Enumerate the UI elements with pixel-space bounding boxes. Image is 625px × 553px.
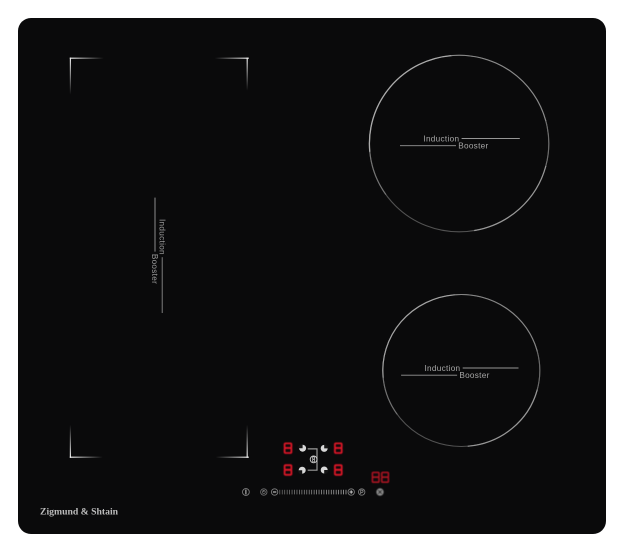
svg-text:Booster: Booster	[458, 142, 488, 151]
svg-text:Induction: Induction	[157, 219, 166, 255]
svg-text:Booster: Booster	[459, 371, 489, 380]
svg-text:Induction: Induction	[423, 134, 459, 143]
svg-text:Zigmund & Shtain: Zigmund & Shtain	[40, 506, 119, 517]
svg-text:Induction: Induction	[424, 364, 460, 373]
svg-text:Booster: Booster	[150, 254, 159, 284]
